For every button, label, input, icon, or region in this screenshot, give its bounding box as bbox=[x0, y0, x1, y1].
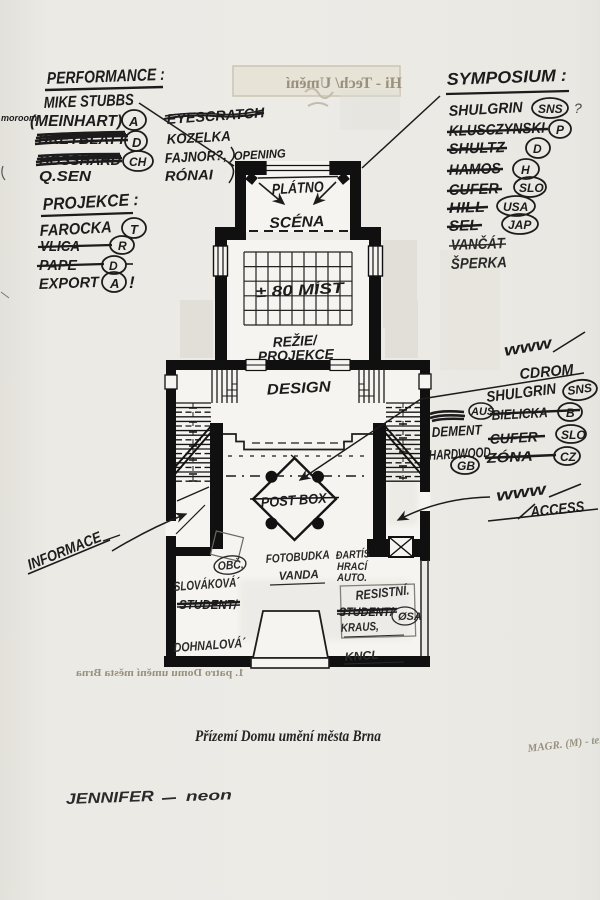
svg-text:RÓNAI: RÓNAI bbox=[165, 165, 215, 184]
svg-text:JENNIFER: JENNIFER bbox=[66, 788, 155, 808]
svg-text:KRAUS,: KRAUS, bbox=[340, 619, 379, 635]
svg-text:FAJNOR?,: FAJNOR?, bbox=[164, 147, 227, 166]
svg-text:A: A bbox=[109, 276, 119, 291]
svg-text:ĐARTÍS: ĐARTÍS bbox=[335, 547, 370, 562]
svg-text:?: ? bbox=[574, 100, 582, 116]
svg-text:!: ! bbox=[129, 273, 135, 292]
svg-text:CZ: CZ bbox=[560, 450, 577, 464]
svg-text:SCÉNA: SCÉNA bbox=[269, 213, 325, 232]
svg-text:GB: GB bbox=[457, 459, 475, 473]
svg-text:neon: neon bbox=[186, 786, 233, 804]
svg-text:AUTO.: AUTO. bbox=[336, 572, 367, 584]
svg-text:Přízemí Domu umění města Brna: Přízemí Domu umění města Brna bbox=[194, 728, 381, 745]
svg-text:D: D bbox=[132, 135, 142, 150]
svg-text:MIKE STUBBS: MIKE STUBBS bbox=[44, 92, 135, 112]
svg-text:H: H bbox=[521, 163, 530, 177]
svg-text:USA: USA bbox=[503, 200, 528, 214]
svg-text:OPENING: OPENING bbox=[233, 146, 286, 163]
svg-text:T: T bbox=[130, 222, 139, 237]
svg-text:SLO: SLO bbox=[561, 428, 586, 442]
svg-text:KNCL: KNCL bbox=[344, 648, 379, 664]
svg-text:B: B bbox=[566, 406, 575, 420]
svg-text:DEMENT: DEMENT bbox=[431, 421, 483, 440]
svg-text:A: A bbox=[128, 114, 138, 129]
svg-text:VANDA: VANDA bbox=[278, 567, 319, 583]
svg-text:P: P bbox=[556, 123, 565, 137]
svg-text:EXPORT: EXPORT bbox=[39, 274, 101, 293]
svg-text:1. patro Domu umění města Brna: 1. patro Domu umění města Brna bbox=[76, 668, 244, 679]
svg-text:KOZELKA: KOZELKA bbox=[166, 128, 231, 147]
svg-text:D: D bbox=[533, 142, 542, 156]
svg-text:ŠPERKA: ŠPERKA bbox=[451, 253, 508, 273]
svg-text:R: R bbox=[118, 239, 127, 253]
svg-text:PLÁTNO: PLÁTNO bbox=[271, 179, 324, 199]
svg-text:(MEINHART): (MEINHART) bbox=[30, 113, 122, 130]
svg-text:Q.SEN: Q.SEN bbox=[39, 168, 92, 185]
svg-text:CH: CH bbox=[129, 155, 147, 169]
svg-text:SNS: SNS bbox=[538, 102, 563, 116]
svg-text:JAP: JAP bbox=[508, 218, 532, 232]
svg-text:Hi - Tech/ Umění: Hi - Tech/ Umění bbox=[285, 75, 402, 92]
svg-text:SLO: SLO bbox=[519, 181, 544, 195]
svg-text:DESIGN: DESIGN bbox=[266, 378, 332, 398]
svg-text:D: D bbox=[109, 259, 118, 273]
